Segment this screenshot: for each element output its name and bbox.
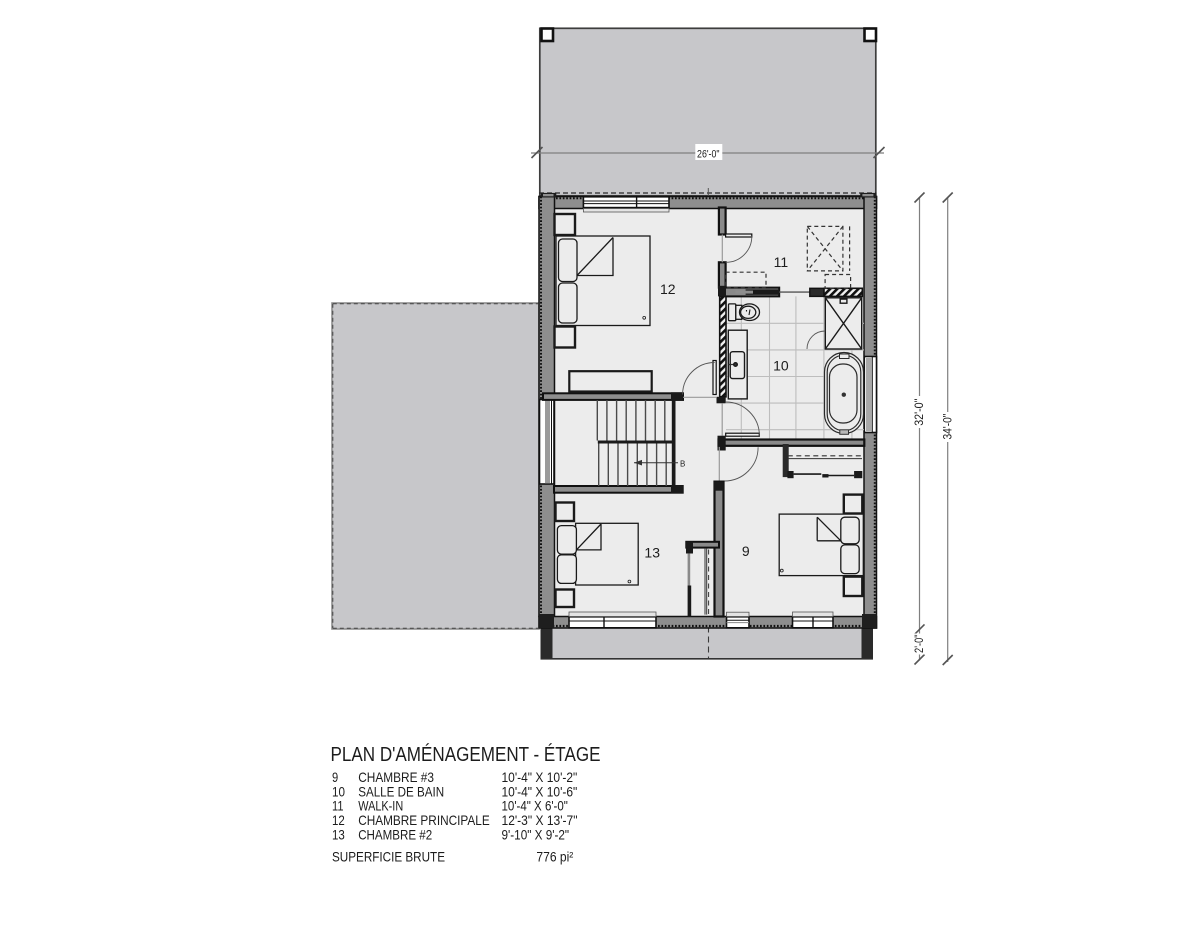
svg-text:9'-10" X 9'-2": 9'-10" X 9'-2" [502, 828, 570, 843]
svg-text:10'-4" X 10'-6": 10'-4" X 10'-6" [502, 784, 578, 799]
svg-text:776 pi²: 776 pi² [536, 850, 573, 865]
svg-text:10: 10 [332, 784, 345, 799]
svg-text:PLAN D'AMÉNAGEMENT - ÉTAGE: PLAN D'AMÉNAGEMENT - ÉTAGE [331, 743, 601, 766]
svg-text:34'-0": 34'-0" [940, 414, 954, 440]
svg-text:SALLE DE BAIN: SALLE DE BAIN [358, 784, 444, 799]
svg-text:10'-4" X 6'-0": 10'-4" X 6'-0" [502, 799, 569, 814]
svg-text:10'-4" X 10'-2": 10'-4" X 10'-2" [502, 770, 578, 785]
svg-text:CHAMBRE PRINCIPALE: CHAMBRE PRINCIPALE [358, 813, 490, 828]
svg-text:13: 13 [332, 828, 345, 843]
svg-text:13: 13 [644, 545, 660, 561]
svg-text:26'-0": 26'-0" [697, 148, 720, 160]
svg-text:11: 11 [774, 254, 789, 270]
svg-text:B: B [680, 460, 685, 469]
svg-text:12: 12 [332, 813, 345, 828]
svg-text:CHAMBRE #2: CHAMBRE #2 [358, 828, 432, 843]
svg-text:SUPERFICIE BRUTE: SUPERFICIE BRUTE [332, 850, 445, 865]
svg-text:12: 12 [660, 281, 676, 297]
svg-text:10: 10 [773, 357, 789, 373]
svg-text:32'-0": 32'-0" [912, 399, 926, 426]
svg-text:9: 9 [742, 543, 750, 559]
svg-text:2'-0": 2'-0" [912, 634, 926, 653]
svg-text:12'-3" X 13'-7": 12'-3" X 13'-7" [502, 813, 578, 828]
svg-text:9: 9 [332, 770, 338, 785]
svg-text:WALK-IN: WALK-IN [358, 799, 403, 814]
svg-text:11: 11 [332, 799, 344, 814]
svg-text:CHAMBRE #3: CHAMBRE #3 [358, 770, 434, 785]
